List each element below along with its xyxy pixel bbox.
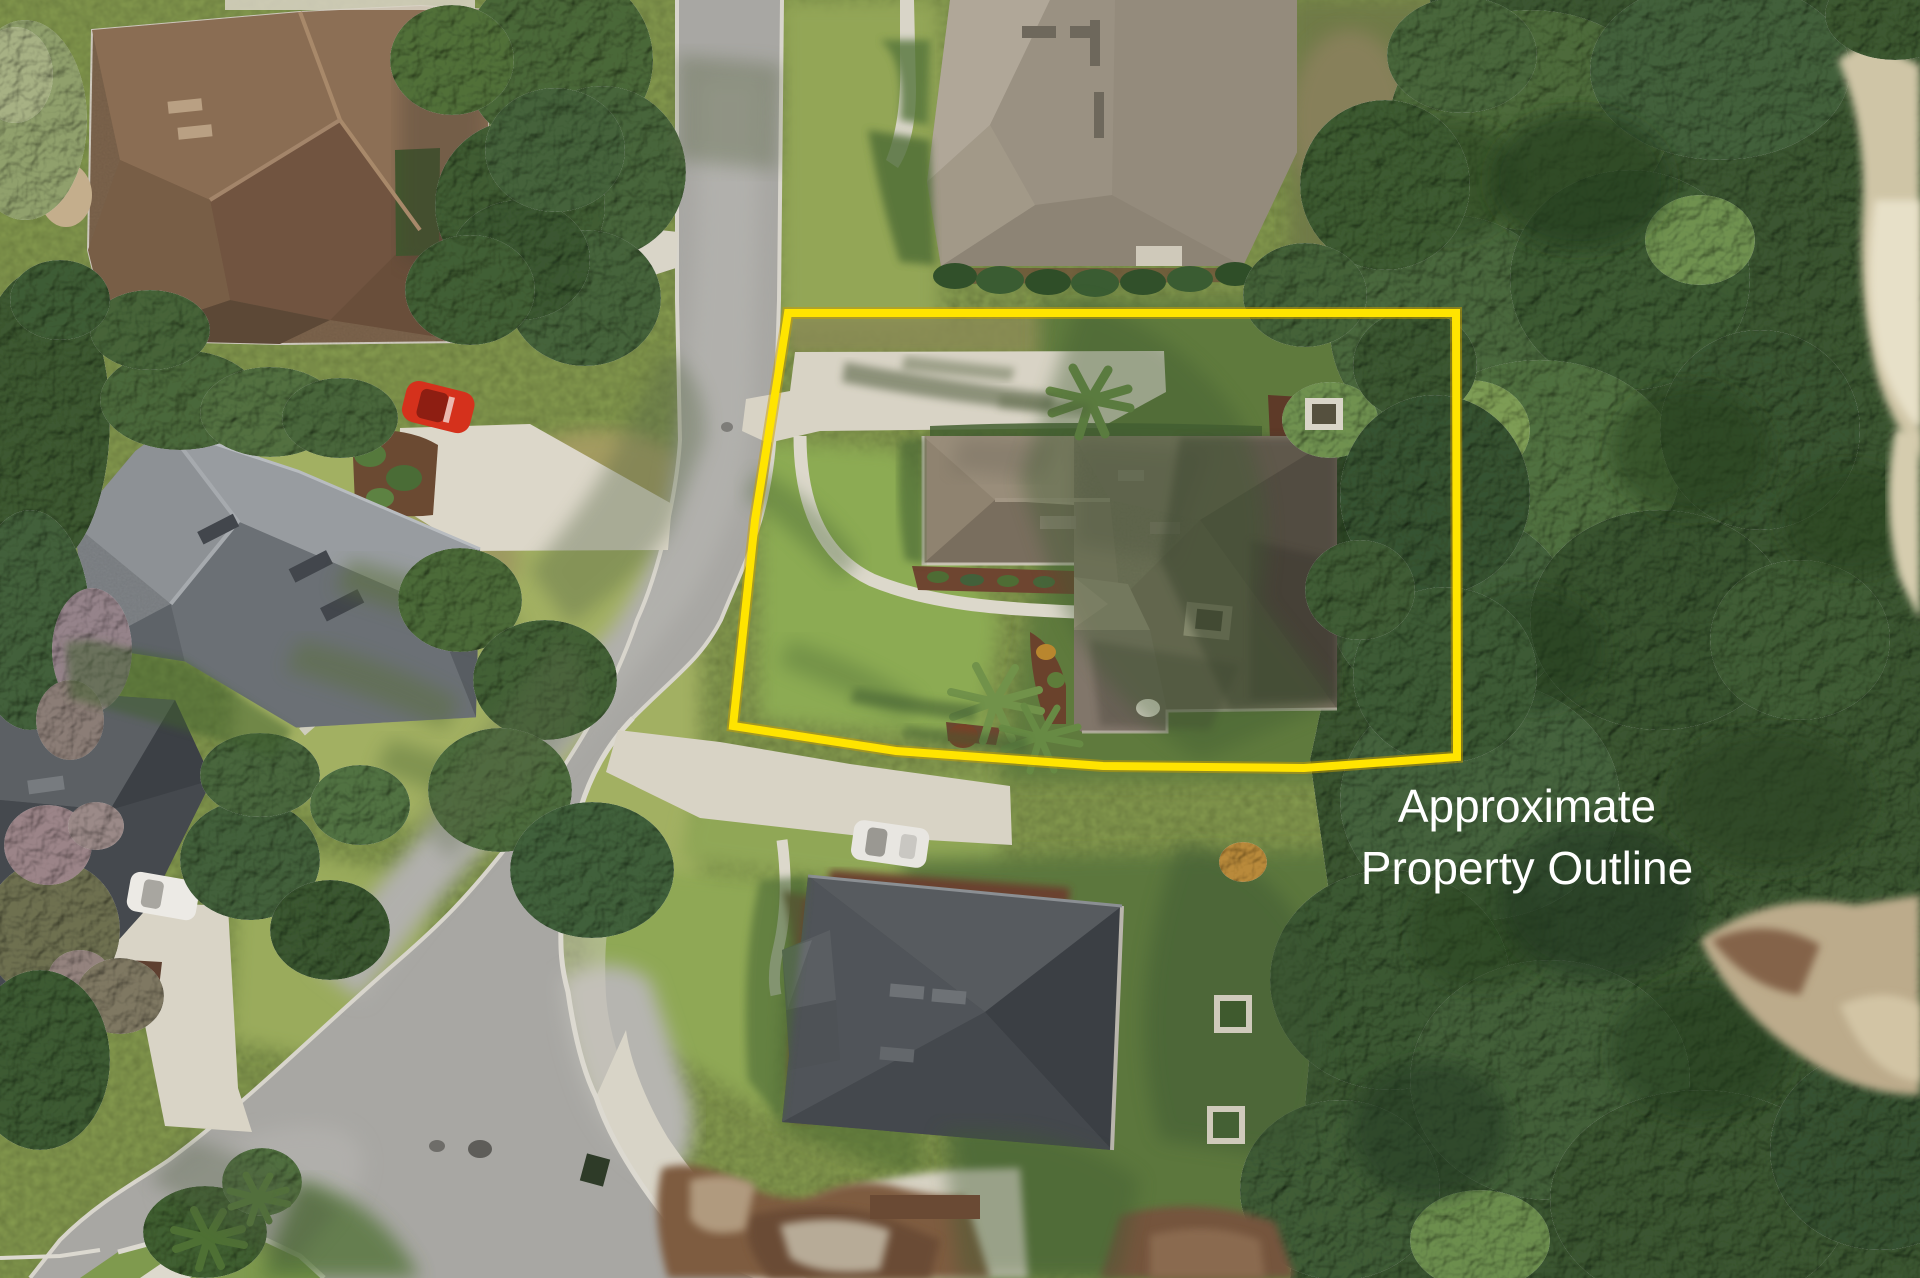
svg-text:Approximate: Approximate bbox=[1398, 780, 1656, 832]
svg-text:Property Outline: Property Outline bbox=[1361, 842, 1693, 894]
